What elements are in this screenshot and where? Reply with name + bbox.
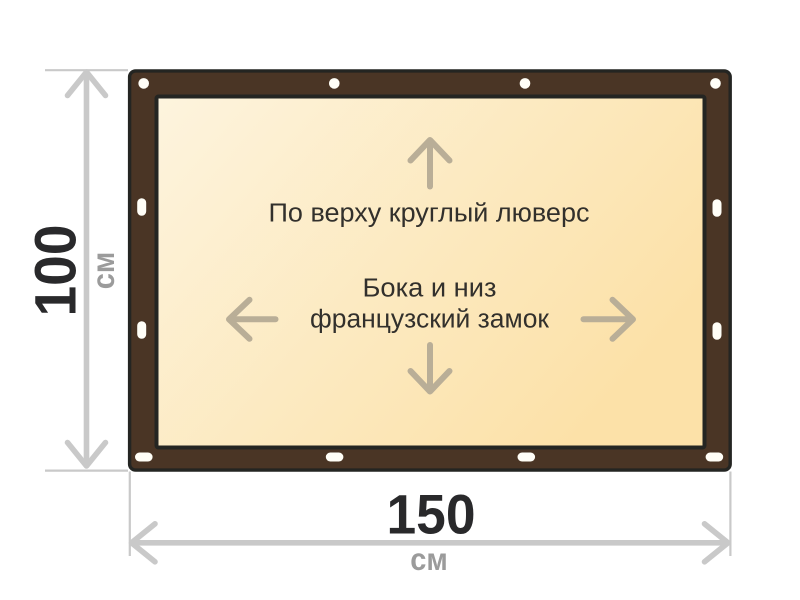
svg-text:см: см: [410, 541, 448, 577]
svg-text:По верху круглый люверс: По верху круглый люверс: [269, 199, 590, 227]
svg-text:французский замок: французский замок: [310, 305, 550, 333]
svg-text:150: 150: [387, 483, 476, 546]
svg-text:100: 100: [24, 225, 89, 317]
svg-text:Бока и низ: Бока и низ: [363, 274, 497, 302]
svg-text:см: см: [85, 252, 121, 290]
